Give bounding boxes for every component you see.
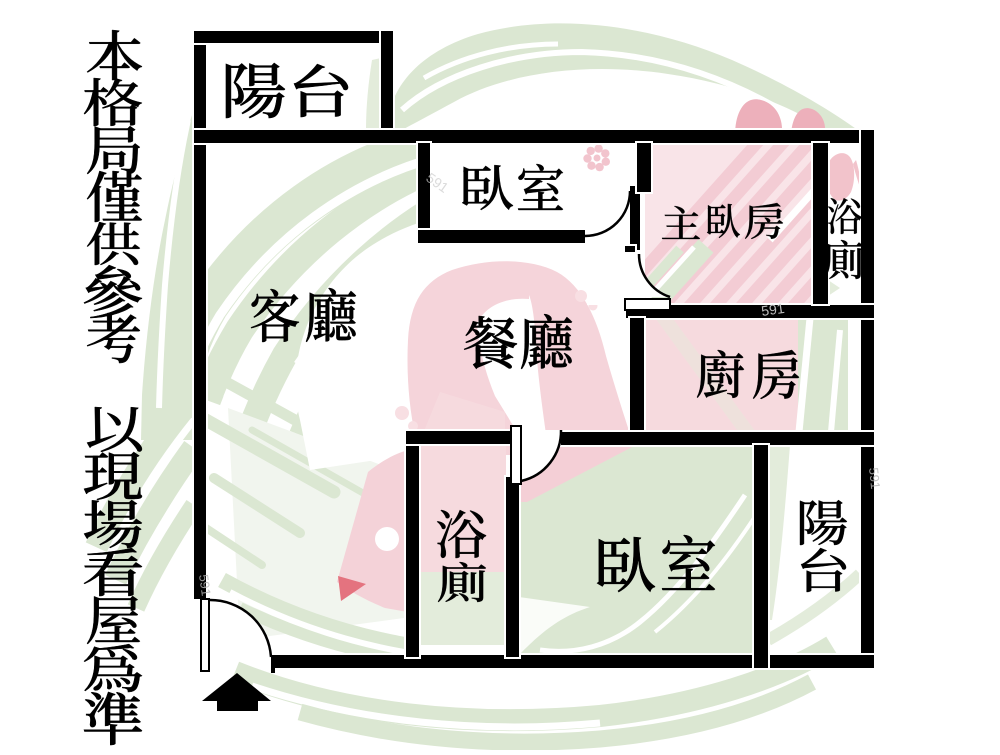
svg-text:591: 591	[196, 573, 214, 597]
svg-text:591: 591	[760, 300, 786, 319]
svg-text:591: 591	[866, 467, 883, 490]
